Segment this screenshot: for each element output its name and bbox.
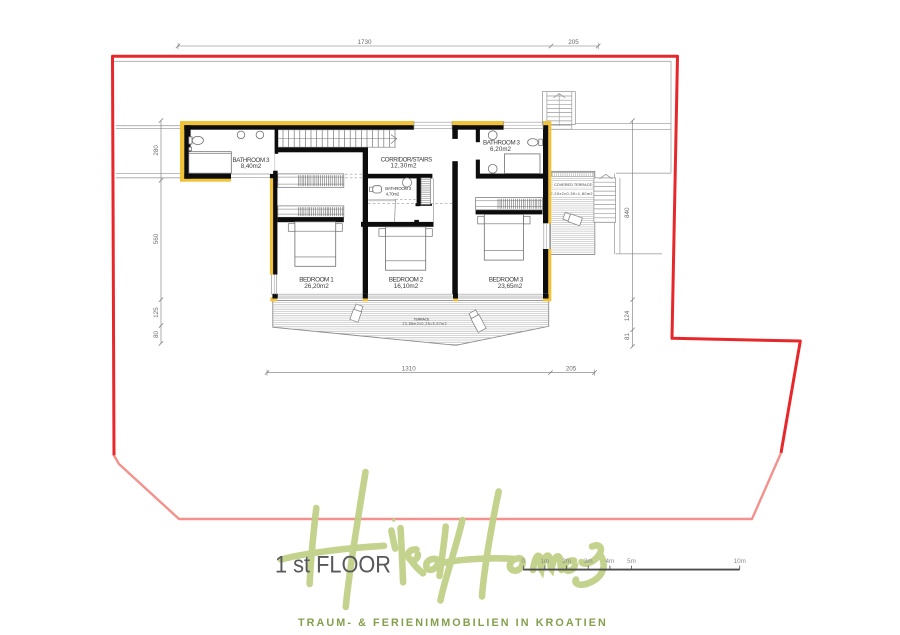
svg-text:205: 205 — [568, 39, 579, 46]
svg-text:4m: 4m — [606, 558, 615, 565]
svg-text:1730: 1730 — [357, 39, 372, 46]
svg-text:23,88m2x0,28=5,67m2: 23,88m2x0,28=5,67m2 — [403, 322, 447, 326]
svg-text:2m: 2m — [562, 558, 571, 565]
svg-text:26,20m2: 26,20m2 — [304, 283, 329, 290]
svg-text:2,20x2x0,35=1,80m2: 2,20x2x0,35=1,80m2 — [551, 192, 593, 196]
svg-text:125: 125 — [153, 307, 160, 318]
svg-text:124: 124 — [624, 310, 631, 321]
svg-text:205: 205 — [566, 365, 577, 372]
svg-text:0: 0 — [522, 558, 526, 565]
svg-text:1 st FLOOR: 1 st FLOOR — [275, 552, 391, 579]
svg-text:TERRACE: TERRACE — [414, 318, 430, 322]
svg-text:4,70m2: 4,70m2 — [386, 192, 400, 197]
svg-text:1m: 1m — [541, 558, 550, 565]
svg-text:80: 80 — [153, 331, 160, 339]
svg-text:81: 81 — [624, 333, 631, 341]
svg-text:12,30m2: 12,30m2 — [391, 163, 418, 170]
svg-text:16,10m2: 16,10m2 — [394, 283, 419, 290]
svg-text:BATHROOM 3: BATHROOM 3 — [385, 186, 412, 191]
svg-text:23,65m2: 23,65m2 — [498, 283, 523, 290]
svg-text:6,20m2: 6,20m2 — [490, 146, 512, 153]
svg-text:560: 560 — [153, 233, 160, 244]
svg-text:10m: 10m — [734, 558, 746, 565]
svg-text:3m: 3m — [584, 558, 593, 565]
svg-text:TRAUM- & FERIENIMMOBILIEN IN K: TRAUM- & FERIENIMMOBILIEN IN KROATIEN — [298, 617, 608, 629]
svg-text:1310: 1310 — [402, 365, 417, 372]
svg-text:840: 840 — [624, 207, 631, 218]
svg-text:COVERED TERRACE: COVERED TERRACE — [554, 183, 592, 187]
svg-text:5m: 5m — [627, 558, 636, 565]
svg-text:8,40m2: 8,40m2 — [241, 163, 262, 170]
svg-text:280: 280 — [153, 145, 160, 156]
